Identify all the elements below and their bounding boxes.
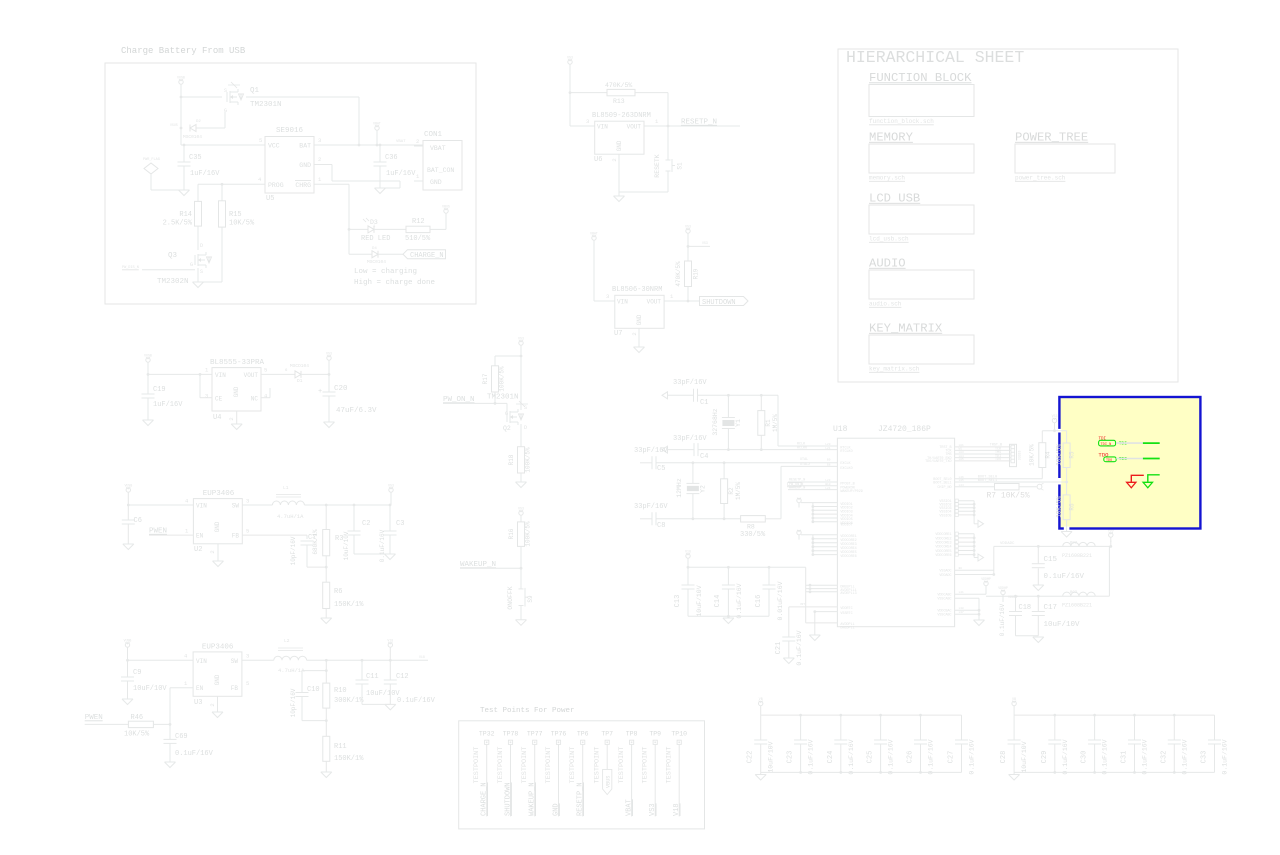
- svg-text:EUP3406: EUP3406: [203, 490, 235, 498]
- svg-text:VBAT: VBAT: [373, 122, 381, 126]
- svg-text:C12: C12: [396, 673, 409, 681]
- svg-text:VSSIO5: VSSIO5: [939, 514, 951, 518]
- svg-text:3: 3: [606, 293, 609, 300]
- svg-text:VDDHP: VDDHP: [998, 586, 1008, 590]
- svg-text:S: S: [224, 88, 227, 94]
- svg-text:RCLKO: RCLKO: [797, 446, 807, 450]
- svg-text:300K/1%: 300K/1%: [334, 697, 364, 705]
- svg-text:VSSCABC: VSSCABC: [937, 598, 951, 602]
- svg-text:470K/5%: 470K/5%: [675, 261, 682, 287]
- svg-text:GND: GND: [430, 179, 442, 186]
- svg-text:12MHz: 12MHz: [676, 478, 683, 498]
- svg-text:B6: B6: [959, 567, 963, 570]
- svg-text:470K/5%: 470K/5%: [605, 82, 632, 89]
- svg-text:R13: R13: [613, 98, 625, 105]
- svg-text:R6: R6: [1069, 503, 1076, 511]
- svg-text:TP10: TP10: [671, 731, 687, 738]
- svg-text:VB: VB: [759, 697, 763, 701]
- svg-text:C8: C8: [657, 522, 665, 530]
- svg-text:33pF/16V: 33pF/16V: [634, 447, 668, 455]
- svg-text:C23: C23: [787, 751, 795, 764]
- svg-text:C26: C26: [907, 751, 915, 764]
- svg-text:1uF/16V: 1uF/16V: [190, 170, 220, 178]
- svg-text:2: 2: [631, 332, 638, 335]
- svg-text:1M/5%: 1M/5%: [772, 414, 779, 432]
- svg-text:VUSB: VUSB: [124, 639, 132, 643]
- svg-text:D2: D2: [196, 120, 201, 124]
- svg-text:L20: L20: [825, 443, 830, 446]
- svg-text:ONOFFK: ONOFFK: [507, 586, 514, 610]
- svg-text:R17: R17: [482, 373, 489, 384]
- svg-text:0.1uF/16V: 0.1uF/16V: [1142, 739, 1149, 774]
- svg-text:VIN: VIN: [196, 658, 207, 665]
- svg-text:memory.sch: memory.sch: [869, 175, 905, 182]
- svg-text:EN: EN: [196, 685, 204, 692]
- svg-text:10K/5%: 10K/5%: [229, 220, 255, 228]
- svg-text:U5: U5: [266, 195, 274, 203]
- svg-text:L37: L37: [959, 611, 964, 614]
- svg-text:10K/5%: 10K/5%: [1029, 444, 1036, 466]
- svg-text:L21: L21: [825, 447, 830, 450]
- svg-text:R18: R18: [508, 454, 515, 465]
- svg-text:S9: S9: [527, 595, 534, 603]
- svg-text:VUSB: VUSB: [124, 484, 132, 488]
- svg-text:Test Points For Power: Test Points For Power: [480, 707, 575, 715]
- svg-text:2: 2: [209, 703, 216, 706]
- svg-text:GND: GND: [616, 140, 623, 151]
- svg-text:C3: C3: [396, 520, 404, 528]
- svg-text:R46: R46: [131, 714, 144, 722]
- svg-text:JZ4720_186P: JZ4720_186P: [878, 425, 931, 434]
- svg-text:Y2: Y2: [700, 485, 707, 493]
- svg-text:TM2302N: TM2302N: [157, 278, 189, 286]
- svg-text:VCC: VCC: [268, 143, 280, 150]
- svg-text:VRT: VRT: [800, 603, 805, 606]
- svg-text:L83: L83: [959, 451, 964, 454]
- svg-text:VSSCABC: VSSCABC: [937, 614, 951, 618]
- svg-text:S1: S1: [677, 162, 684, 170]
- svg-text:GND: GND: [299, 162, 311, 169]
- svg-text:32768Hz: 32768Hz: [712, 408, 719, 435]
- svg-text:1M/5%: 1M/5%: [735, 482, 742, 500]
- svg-text:33333: 33333: [1018, 451, 1022, 461]
- svg-text:10uF/10V: 10uF/10V: [768, 741, 775, 772]
- svg-text:5: 5: [246, 680, 249, 687]
- svg-text:C31: C31: [1121, 751, 1129, 764]
- svg-text:XTAL: XTAL: [800, 458, 808, 462]
- svg-text:EUP3406: EUP3406: [202, 644, 234, 652]
- svg-text:CHARGE_N: CHARGE_N: [410, 252, 444, 260]
- svg-text:key_matrix.sch: key_matrix.sch: [869, 366, 920, 373]
- svg-text:10uF/10V: 10uF/10V: [1044, 621, 1081, 629]
- svg-text:R4: R4: [1045, 451, 1052, 459]
- svg-text:100K/5%: 100K/5%: [499, 366, 506, 392]
- svg-text:TESTPOINT: TESTPOINT: [594, 747, 602, 784]
- svg-text:EXCLK: EXCLK: [840, 462, 851, 466]
- svg-text:C2: C2: [362, 520, 370, 528]
- svg-text:TESTPOINT: TESTPOINT: [569, 747, 577, 784]
- svg-text:C36: C36: [385, 154, 398, 162]
- svg-text:U18: U18: [833, 425, 848, 434]
- svg-text:0.1uF/16V: 0.1uF/16V: [1102, 739, 1109, 774]
- svg-text:SE9016: SE9016: [276, 127, 304, 135]
- svg-text:C25: C25: [867, 751, 875, 764]
- svg-text:EN: EN: [196, 533, 204, 540]
- svg-text:C13: C13: [674, 595, 682, 608]
- svg-text:CHIP_NO: CHIP_NO: [937, 486, 951, 490]
- svg-text:0.01uF/16V: 0.01uF/16V: [777, 581, 784, 620]
- svg-text:0.1uF/16V: 0.1uF/16V: [736, 583, 743, 618]
- svg-text:VS3: VS3: [326, 352, 332, 356]
- svg-text:C10: C10: [307, 686, 320, 694]
- svg-text:VIN: VIN: [196, 503, 207, 510]
- svg-text:R2: R2: [728, 487, 735, 495]
- svg-text:Y1: Y1: [735, 419, 742, 427]
- svg-text:U6: U6: [594, 156, 602, 164]
- svg-text:33pF/16V: 33pF/16V: [673, 435, 707, 443]
- svg-text:D: D: [524, 425, 527, 431]
- svg-text:0.1uF/16V: 0.1uF/16V: [808, 739, 815, 774]
- svg-text:+: +: [318, 388, 322, 396]
- svg-text:R5: R5: [1069, 451, 1076, 459]
- svg-text:0.1uF/16V: 0.1uF/16V: [888, 739, 895, 774]
- svg-text:VDDCORE6: VDDCORE6: [840, 555, 856, 559]
- svg-text:10uF/10V: 10uF/10V: [133, 685, 167, 693]
- svg-text:10uF/10V: 10uF/10V: [343, 531, 350, 560]
- svg-text:5: 5: [259, 137, 262, 144]
- svg-text:R8: R8: [747, 524, 755, 531]
- svg-text:VDDMP: VDDMP: [981, 577, 991, 581]
- svg-text:Q2: Q2: [503, 425, 511, 432]
- svg-text:U3: U3: [194, 699, 202, 707]
- svg-text:VDDIO7: VDDIO7: [840, 524, 852, 528]
- svg-text:C5: C5: [657, 465, 665, 473]
- svg-text:C29: C29: [1041, 751, 1049, 764]
- svg-text:0.1uF/16V: 0.1uF/16V: [397, 697, 436, 705]
- svg-text:C16: C16: [755, 595, 763, 608]
- svg-text:TESTPOINT: TESTPOINT: [666, 747, 674, 784]
- svg-text:Q3: Q3: [168, 252, 178, 260]
- svg-text:L41: L41: [959, 591, 964, 594]
- svg-text:CE: CE: [215, 396, 223, 403]
- svg-text:0.1uF/16V: 0.1uF/16V: [175, 750, 214, 758]
- svg-text:VOUT: VOUT: [627, 124, 642, 131]
- svg-text:D4: D4: [372, 247, 377, 251]
- svg-text:VOUT: VOUT: [647, 299, 662, 306]
- svg-text:VIN: VIN: [215, 372, 226, 379]
- svg-text:10K/5%: 10K/5%: [1056, 444, 1063, 466]
- svg-text:BAT_CON: BAT_CON: [427, 167, 454, 174]
- svg-text:R12: R12: [412, 218, 425, 226]
- svg-text:BL8506-30NRM: BL8506-30NRM: [612, 286, 662, 294]
- svg-text:TP7: TP7: [601, 731, 613, 738]
- svg-text:2: 2: [611, 158, 618, 161]
- svg-text:RED LED: RED LED: [361, 235, 390, 243]
- svg-text:VS3: VS3: [388, 484, 394, 488]
- svg-text:150K/1%: 150K/1%: [334, 601, 364, 609]
- svg-text:0.1uF/16V: 0.1uF/16V: [379, 529, 386, 562]
- svg-text:TDO/UART0_TXD: TDO/UART0_TXD: [925, 459, 951, 464]
- svg-text:BL8509-263DNRM: BL8509-263DNRM: [592, 112, 651, 120]
- svg-text:C35: C35: [189, 154, 202, 162]
- svg-text:TM2301N: TM2301N: [250, 101, 282, 109]
- svg-text:R6: R6: [334, 588, 342, 596]
- svg-text:L45: L45: [959, 479, 964, 482]
- svg-text:MSC0104: MSC0104: [367, 259, 386, 265]
- svg-text:BOOT_SEL1: BOOT_SEL1: [978, 479, 997, 483]
- svg-text:0.1uF/16V: 0.1uF/16V: [1181, 739, 1188, 774]
- svg-text:XTAL2: XTAL2: [800, 463, 810, 467]
- svg-text:G: G: [190, 262, 193, 268]
- svg-text:C24: C24: [827, 751, 835, 764]
- svg-text:GND: GND: [636, 314, 643, 325]
- svg-text:RTCLKO: RTCLKO: [840, 450, 852, 454]
- svg-text:33pF/16V: 33pF/16V: [634, 503, 668, 511]
- svg-text:PZ1608B221: PZ1608B221: [1062, 553, 1092, 559]
- svg-text:TESTPOINT: TESTPOINT: [545, 747, 553, 784]
- svg-text:CHRG: CHRG: [295, 182, 311, 189]
- svg-text:V18: V18: [685, 550, 691, 554]
- svg-text:VDDADC: VDDADC: [1000, 542, 1015, 546]
- svg-text:2: 2: [416, 138, 419, 145]
- svg-text:FB: FB: [231, 685, 239, 692]
- svg-text:TDI_N: TDI_N: [1101, 443, 1112, 447]
- svg-text:VBAT: VBAT: [430, 145, 446, 152]
- svg-text:GND: GND: [214, 674, 221, 685]
- svg-text:D1: D1: [297, 378, 303, 384]
- svg-text:10pF/16V: 10pF/16V: [290, 536, 297, 565]
- svg-text:B8: B8: [827, 464, 831, 467]
- svg-text:W1: W1: [959, 448, 963, 451]
- svg-text:2.5K/5%: 2.5K/5%: [163, 220, 193, 228]
- svg-text:R7 10K/5%: R7 10K/5%: [987, 492, 1030, 501]
- svg-text:C14: C14: [714, 595, 722, 608]
- svg-text:0.1uF/16V: 0.1uF/16V: [1222, 739, 1229, 774]
- svg-text:330/5%: 330/5%: [740, 531, 766, 539]
- svg-text:TDO: TDO: [1106, 459, 1112, 463]
- svg-text:C7: C7: [308, 534, 316, 542]
- svg-text:2: 2: [318, 156, 321, 163]
- svg-text:V18: V18: [387, 639, 393, 643]
- svg-text:C19: C19: [153, 386, 166, 394]
- svg-text:WAKEUP/P029: WAKEUP/P029: [840, 489, 862, 494]
- svg-text:R16: R16: [508, 528, 515, 539]
- svg-text:TDO: TDO: [995, 458, 1001, 462]
- svg-text:100K/5%: 100K/5%: [525, 447, 532, 473]
- svg-text:3: 3: [586, 118, 589, 125]
- svg-text:AVDEPLL3: AVDEPLL3: [840, 592, 856, 596]
- svg-text:S: S: [200, 269, 203, 275]
- svg-text:3: 3: [246, 498, 249, 505]
- svg-text:HIERARCHICAL SHEET: HIERARCHICAL SHEET: [846, 48, 1024, 67]
- svg-text:C22: C22: [747, 751, 755, 764]
- svg-text:MSC0104: MSC0104: [183, 134, 202, 140]
- svg-text:C4: C4: [700, 453, 708, 461]
- svg-text:10uF/10V: 10uF/10V: [696, 585, 703, 616]
- svg-text:10uF/10V: 10uF/10V: [1021, 741, 1028, 772]
- svg-text:C32: C32: [1160, 751, 1168, 764]
- svg-text:TP8: TP8: [626, 731, 638, 738]
- svg-text:VSUS: VSUS: [170, 123, 178, 127]
- svg-text:0.1uF/16V: 0.1uF/16V: [1044, 573, 1085, 581]
- svg-text:L38: L38: [959, 607, 964, 610]
- svg-text:VS3: VS3: [1052, 414, 1058, 418]
- svg-text:3: 3: [205, 393, 208, 400]
- svg-text:0.1uF/16V: 0.1uF/16V: [928, 739, 935, 774]
- svg-text:5: 5: [264, 367, 267, 374]
- svg-text:TP32: TP32: [479, 731, 495, 738]
- svg-text:L1: L1: [283, 485, 289, 491]
- svg-text:10K/5%: 10K/5%: [124, 731, 150, 739]
- svg-text:47uF/6.3V: 47uF/6.3V: [336, 407, 377, 415]
- svg-text:EXCLKO: EXCLKO: [840, 467, 852, 471]
- svg-text:power_tree.sch: power_tree.sch: [1015, 175, 1066, 182]
- svg-text:GND: GND: [233, 386, 240, 397]
- svg-text:3: 3: [318, 137, 321, 144]
- svg-text:C20: C20: [334, 385, 348, 393]
- svg-text:VIN: VIN: [597, 124, 608, 131]
- svg-text:TESTPOINT: TESTPOINT: [473, 747, 481, 784]
- svg-text:10K/5%: 10K/5%: [1056, 496, 1063, 518]
- svg-text:1uF/16V: 1uF/16V: [153, 401, 183, 409]
- svg-text:BAT: BAT: [299, 143, 311, 150]
- svg-text:10pF/16V: 10pF/16V: [290, 688, 297, 717]
- svg-text:C9: C9: [133, 669, 141, 677]
- svg-text:VOUT: VOUT: [244, 372, 259, 379]
- svg-text:VS3: VS3: [685, 225, 691, 229]
- svg-text:100K/5%: 100K/5%: [525, 521, 532, 547]
- svg-text:TM2301N: TM2301N: [487, 394, 519, 402]
- svg-text:MSCD104: MSCD104: [290, 363, 309, 369]
- svg-text:Q1: Q1: [250, 87, 260, 95]
- svg-text:GND: GND: [214, 521, 221, 532]
- svg-text:NC: NC: [251, 396, 259, 403]
- svg-text:PZ1608B221: PZ1608B221: [1062, 603, 1092, 609]
- svg-text:U7: U7: [614, 330, 622, 338]
- svg-text:VS3: VS3: [702, 241, 708, 245]
- svg-text:Low = charging: Low = charging: [354, 268, 417, 276]
- svg-text:R19: R19: [693, 268, 700, 279]
- svg-text:lcd_usb.sch: lcd_usb.sch: [869, 236, 909, 243]
- svg-text:WAKEUP_N: WAKEUP_N: [789, 487, 805, 491]
- svg-text:VBUS: VBUS: [605, 776, 611, 788]
- svg-text:R10: R10: [334, 687, 347, 695]
- svg-text:BL8555-33PRA: BL8555-33PRA: [210, 359, 265, 367]
- svg-text:PWR_FLAG: PWR_FLAG: [143, 158, 160, 162]
- svg-text:FB: FB: [232, 533, 240, 540]
- svg-text:VSSRTC: VSSRTC: [840, 612, 852, 616]
- svg-text:VDDRTC: VDDRTC: [840, 607, 852, 611]
- svg-text:510/5%: 510/5%: [405, 235, 431, 243]
- svg-text:SW: SW: [232, 503, 240, 510]
- svg-text:VS3: VS3: [518, 337, 524, 341]
- svg-text:TP78: TP78: [503, 731, 519, 738]
- svg-text:C15: C15: [1044, 556, 1058, 564]
- svg-text:C11: C11: [366, 673, 379, 681]
- svg-text:G: G: [505, 411, 508, 417]
- svg-text:C33: C33: [1201, 751, 1209, 764]
- svg-text:L44: L44: [959, 484, 964, 487]
- svg-text:0.1uF/16V: 0.1uF/16V: [969, 739, 976, 774]
- svg-text:0.1uF/16V: 0.1uF/16V: [999, 603, 1006, 636]
- svg-text:VDDADC: VDDADC: [939, 574, 951, 578]
- svg-text:0.1uF/16V: 0.1uF/16V: [848, 739, 855, 774]
- svg-text:VBUS: VBUS: [442, 205, 450, 209]
- svg-text:C27: C27: [948, 751, 956, 764]
- svg-text:TESTPOINT: TESTPOINT: [642, 747, 650, 784]
- svg-text:C1: C1: [700, 399, 708, 407]
- svg-text:2: 2: [228, 417, 235, 420]
- svg-text:33pF/16V: 33pF/16V: [673, 379, 707, 387]
- svg-text:DNEDPLL: DNEDPLL: [840, 626, 854, 630]
- svg-text:TP6: TP6: [577, 731, 589, 738]
- svg-text:3: 3: [246, 653, 249, 660]
- svg-text:5: 5: [246, 528, 249, 535]
- svg-text:VBAT: VBAT: [590, 232, 598, 236]
- svg-text:4.7uH/1A: 4.7uH/1A: [277, 513, 304, 520]
- svg-text:G: G: [224, 108, 227, 114]
- svg-text:L2: L2: [284, 638, 290, 644]
- svg-text:VUSB: VUSB: [144, 354, 152, 358]
- svg-text:1uF/16V: 1uF/16V: [386, 170, 416, 178]
- svg-text:C18: C18: [1019, 604, 1032, 612]
- svg-text:VDDCORE6: VDDCORE6: [935, 554, 951, 558]
- svg-text:RESETK: RESETK: [654, 154, 661, 178]
- svg-text:R1: R1: [765, 419, 772, 427]
- svg-text:VUSB: VUSB: [177, 76, 185, 80]
- svg-text:SW: SW: [231, 658, 239, 665]
- svg-text:C6: C6: [134, 517, 142, 525]
- svg-text:VS3: VS3: [518, 507, 524, 511]
- svg-text:0.1uF/16V: 0.1uF/16V: [796, 630, 803, 665]
- svg-text:C21: C21: [775, 642, 783, 655]
- svg-text:VS3: VS3: [567, 56, 573, 60]
- svg-text:C28: C28: [1000, 751, 1008, 764]
- svg-text:TESTPOINT: TESTPOINT: [618, 747, 626, 784]
- svg-text:SHUTDOWN: SHUTDOWN: [702, 299, 736, 307]
- svg-text:B9: B9: [827, 459, 831, 462]
- svg-text:TP76: TP76: [551, 731, 567, 738]
- svg-text:VBAT: VBAT: [396, 140, 406, 144]
- svg-text:C17: C17: [1044, 604, 1058, 612]
- svg-text:U4: U4: [213, 414, 221, 422]
- svg-text:0.1uF/16V: 0.1uF/16V: [1062, 739, 1069, 774]
- svg-text:TP77: TP77: [527, 731, 543, 738]
- svg-text:VB: VB: [1012, 697, 1016, 701]
- svg-text:C69: C69: [175, 733, 188, 741]
- svg-text:R14: R14: [179, 211, 192, 219]
- svg-text:TESTPOINT: TESTPOINT: [521, 747, 529, 784]
- svg-text:Charge Battery From USB: Charge Battery From USB: [121, 46, 246, 56]
- svg-text:R11: R11: [334, 743, 347, 751]
- svg-text:U2: U2: [194, 546, 202, 554]
- svg-text:function_block.sch: function_block.sch: [869, 118, 934, 125]
- svg-text:PROG: PROG: [268, 182, 284, 189]
- svg-text:TESTPOINT: TESTPOINT: [497, 747, 505, 784]
- svg-text:High = charge done: High = charge done: [354, 279, 435, 287]
- svg-text:D: D: [200, 243, 203, 249]
- svg-text:10uF/10V: 10uF/10V: [366, 690, 400, 698]
- svg-text:2: 2: [209, 550, 216, 553]
- svg-text:audio.sch: audio.sch: [869, 301, 902, 308]
- svg-text:150K/1%: 150K/1%: [334, 755, 364, 763]
- svg-text:TP9: TP9: [649, 731, 661, 738]
- svg-text:CON1: CON1: [424, 131, 443, 139]
- svg-text:R15: R15: [229, 211, 242, 219]
- svg-text:C30: C30: [1081, 751, 1089, 764]
- svg-text:4.7uH/1A: 4.7uH/1A: [278, 667, 305, 674]
- svg-text:VIN: VIN: [617, 299, 628, 306]
